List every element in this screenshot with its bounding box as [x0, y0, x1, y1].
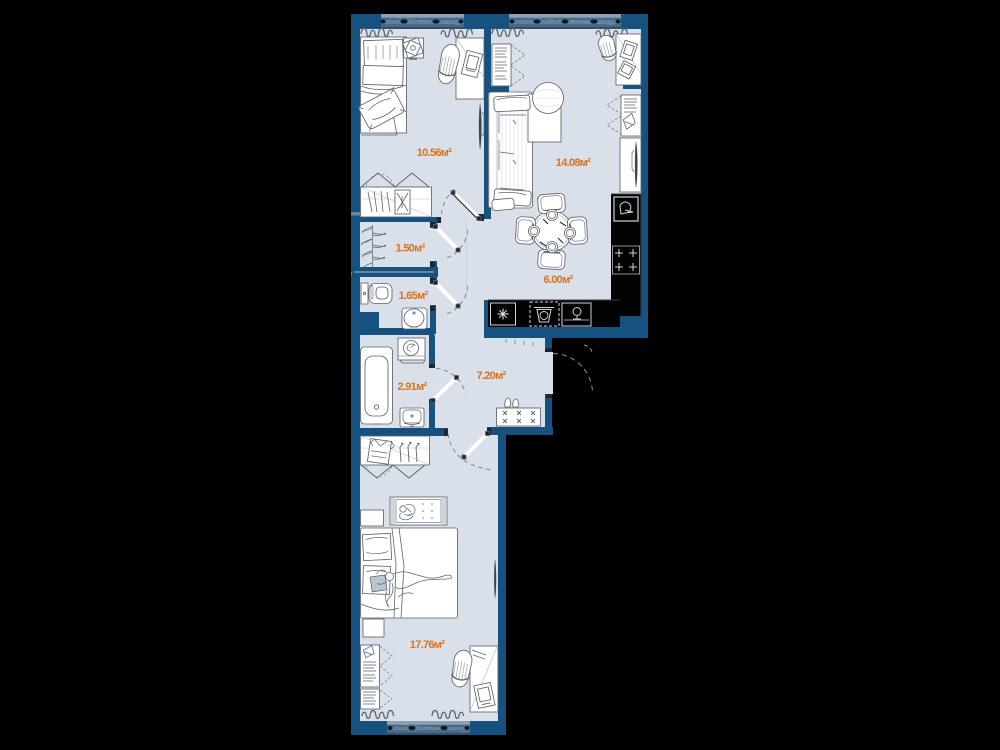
- svg-text:1.65м²: 1.65м²: [398, 290, 428, 302]
- svg-text:2.91м²: 2.91м²: [397, 381, 427, 393]
- svg-text:14.08м²: 14.08м²: [556, 157, 591, 169]
- svg-text:7.20м²: 7.20м²: [476, 370, 506, 382]
- svg-text:10.56м²: 10.56м²: [417, 147, 452, 159]
- svg-text:17.76м²: 17.76м²: [410, 639, 445, 651]
- svg-text:6.00м²: 6.00м²: [543, 274, 573, 286]
- svg-text:1.50м²: 1.50м²: [395, 243, 425, 255]
